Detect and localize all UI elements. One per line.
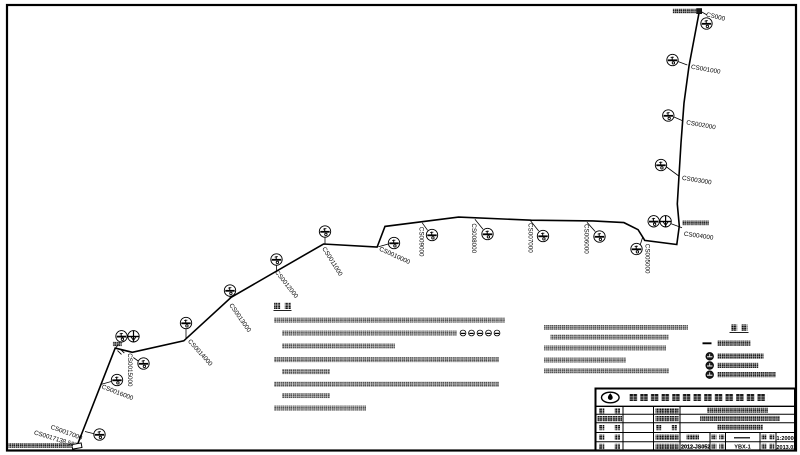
svg-text:CS005000: CS005000 [643,244,650,274]
svg-text:CS0015000: CS0015000 [126,353,133,387]
svg-text:CS008000: CS008000 [470,223,477,253]
svg-text:CS0013000: CS0013000 [227,302,252,334]
svg-text:CS001000: CS001000 [690,64,721,76]
svg-text:CS004000: CS004000 [683,231,714,242]
svg-text:CS0014000: CS0014000 [186,338,214,368]
svg-text:2013.02: 2013.02 [777,445,797,451]
svg-text:2012-JS052: 2012-JS052 [681,445,710,451]
svg-text:CS006000: CS006000 [582,224,589,254]
svg-text:CS007000: CS007000 [526,223,533,253]
svg-text:CS0012000: CS0012000 [273,269,299,300]
svg-text:CS002000: CS002000 [686,119,717,131]
svg-text:CS009000: CS009000 [418,227,425,257]
svg-text:1:20000: 1:20000 [777,436,797,442]
svg-text:CS0011000: CS0011000 [320,246,344,278]
svg-text:CS003000: CS003000 [681,175,712,187]
svg-text:YBX-1: YBX-1 [734,445,750,451]
